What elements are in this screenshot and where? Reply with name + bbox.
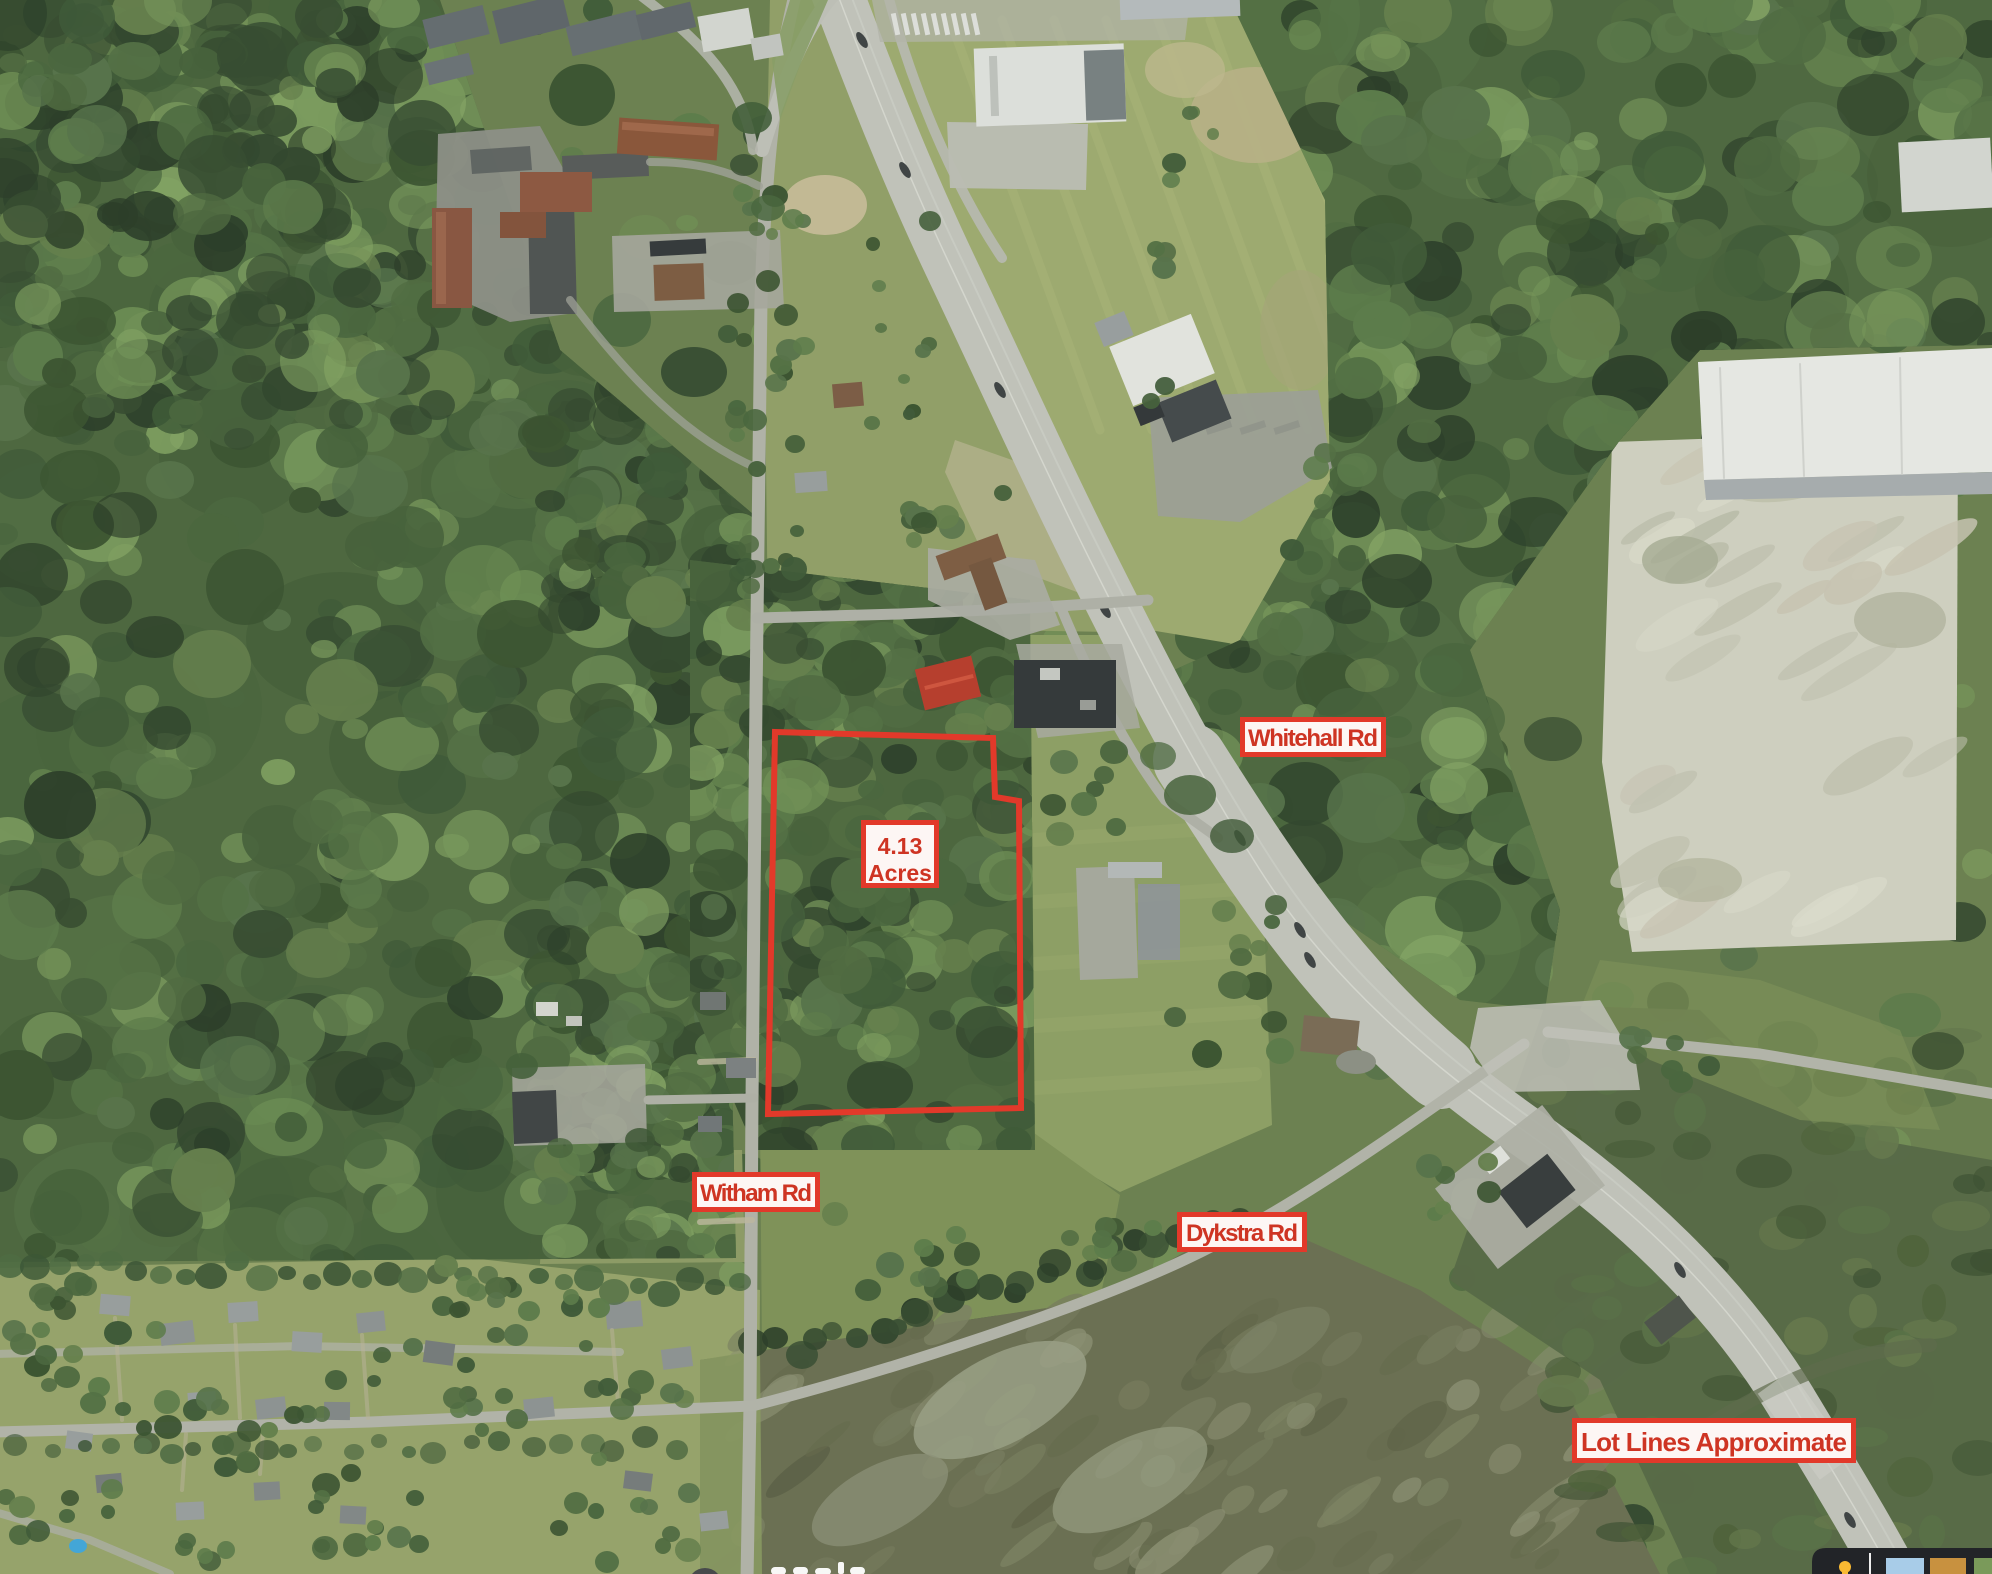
- svg-text:Lot Lines Approximate: Lot Lines Approximate: [1581, 1427, 1847, 1457]
- svg-text:Dykstra Rd: Dykstra Rd: [1186, 1220, 1298, 1247]
- svg-text:Witham Rd: Witham Rd: [700, 1180, 812, 1207]
- svg-text:Whitehall Rd: Whitehall Rd: [1248, 725, 1378, 752]
- svg-text:4.13: 4.13: [878, 833, 923, 859]
- svg-text:Acres: Acres: [868, 860, 932, 886]
